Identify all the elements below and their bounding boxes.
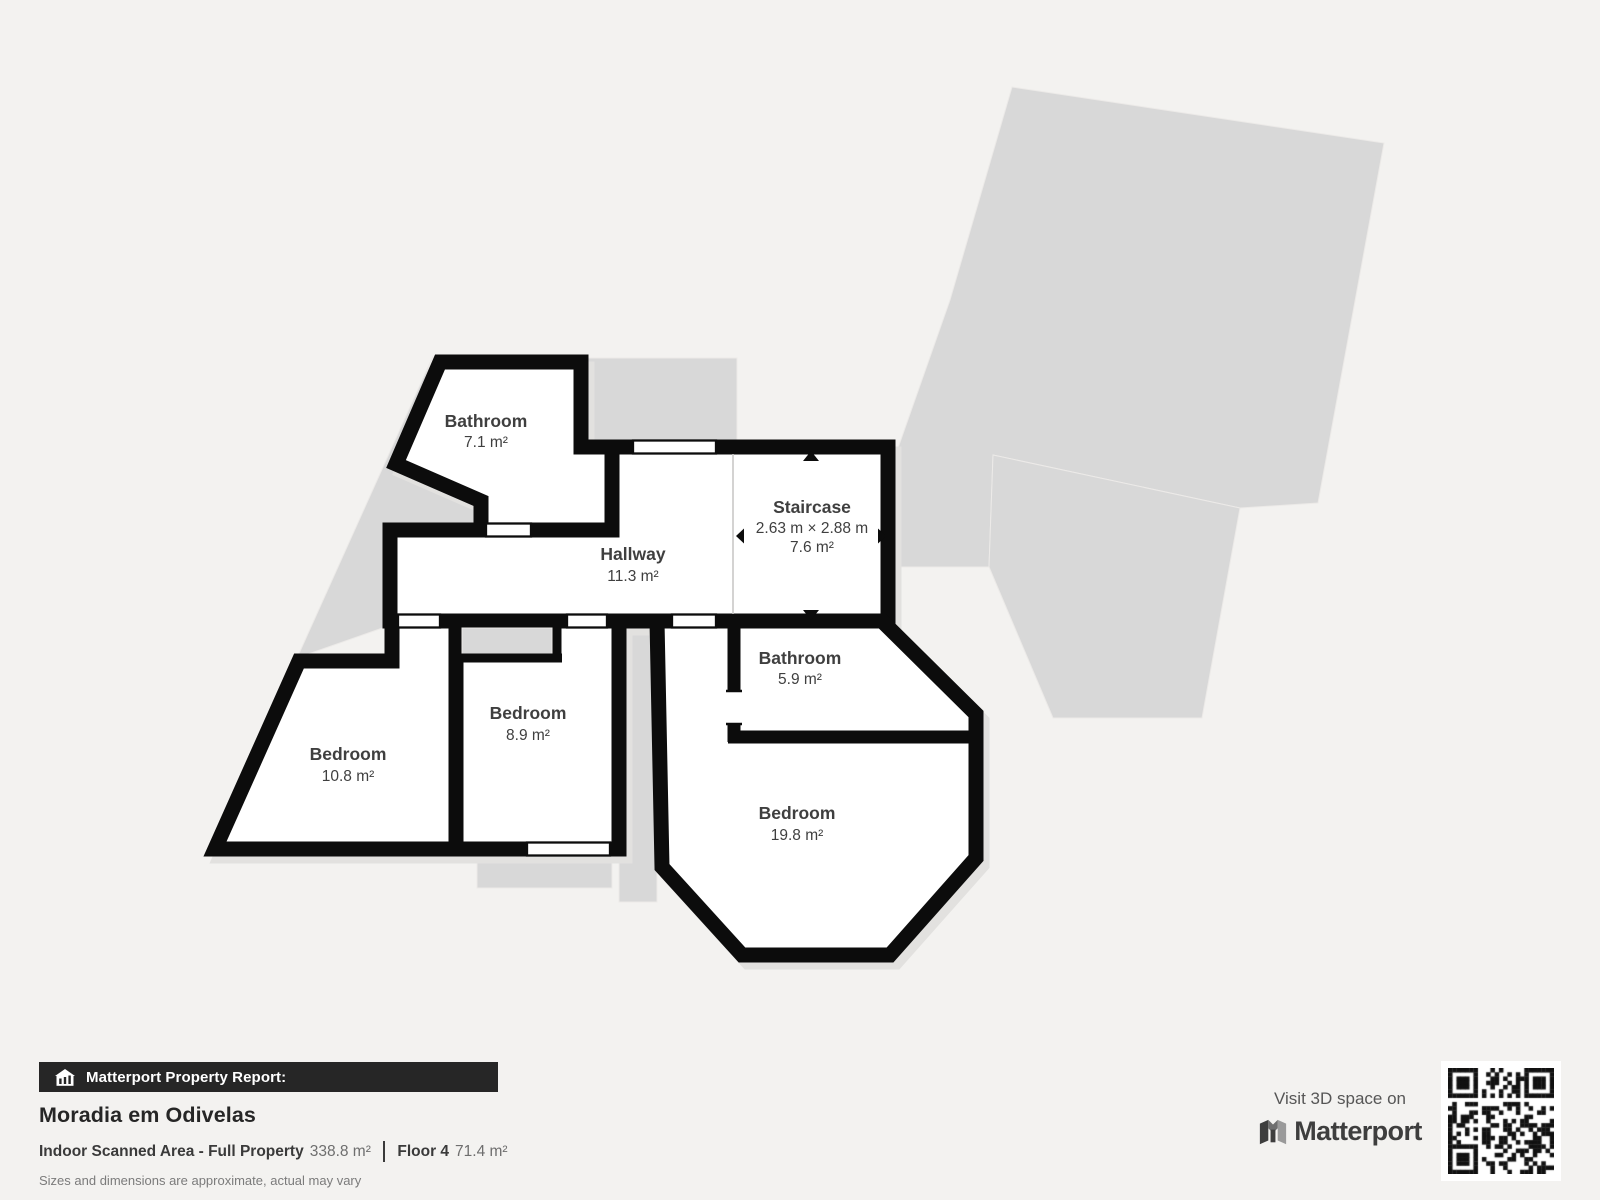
label-staircase-area: 7.6 m² <box>790 539 834 556</box>
disclaimer-text: Sizes and dimensions are approximate, ac… <box>39 1173 508 1188</box>
label-hallway-name: Hallway <box>600 544 665 564</box>
label-bathroom-mid-name: Bathroom <box>759 648 842 668</box>
brand-row: Matterport <box>1245 1116 1435 1147</box>
silhouette-above-hallway <box>587 358 737 443</box>
report-footer: Matterport Property Report: Moradia em O… <box>39 1062 508 1188</box>
matterport-wordmark: Matterport <box>1294 1116 1422 1147</box>
label-staircase-dims: 2.63 m × 2.88 m <box>756 520 868 537</box>
floor-label: Floor 4 <box>397 1143 449 1161</box>
label-staircase-name: Staircase <box>773 497 851 517</box>
opening-bedroom-mid <box>567 615 607 628</box>
visit-3d-text: Visit 3D space on <box>1245 1089 1435 1109</box>
window-bedroom-mid <box>527 843 610 856</box>
qr-code <box>1441 1061 1561 1181</box>
property-title: Moradia em Odivelas <box>39 1103 508 1128</box>
report-bar: Matterport Property Report: <box>39 1062 498 1092</box>
promo-block: Visit 3D space on Matterport <box>1245 1089 1435 1147</box>
label-bedroom-mid-name: Bedroom <box>490 703 567 723</box>
property-report-page: Bathroom 7.1 m² Hallway 11.3 m² Staircas… <box>0 0 1600 1200</box>
matterport-logo-icon <box>1258 1117 1288 1147</box>
closet <box>462 628 552 654</box>
scanned-area-label: Indoor Scanned Area - Full Property <box>39 1143 304 1161</box>
opening-bedroom-left <box>398 615 440 628</box>
floor-plan-svg: Bathroom 7.1 m² Hallway 11.3 m² Staircas… <box>0 0 1600 1200</box>
house-icon <box>55 1069 75 1086</box>
qr-code-canvas <box>1448 1068 1554 1174</box>
window-bathroom-top <box>486 524 531 537</box>
label-bedroom-large-area: 19.8 m² <box>771 827 824 844</box>
label-bedroom-left-name: Bedroom <box>310 744 387 764</box>
report-bar-label: Matterport Property Report: <box>86 1069 286 1086</box>
opening-bedroom-large <box>672 615 716 628</box>
area-stats: Indoor Scanned Area - Full Property 338.… <box>39 1141 508 1162</box>
label-bathroom-top-name: Bathroom <box>445 411 528 431</box>
label-bedroom-large-name: Bedroom <box>759 803 836 823</box>
stats-divider <box>383 1141 386 1162</box>
label-bedroom-left-area: 10.8 m² <box>322 768 375 785</box>
label-bathroom-mid-area: 5.9 m² <box>778 671 822 688</box>
label-bathroom-top-area: 7.1 m² <box>464 434 508 451</box>
window-hallway-top <box>633 441 716 454</box>
label-bedroom-mid-area: 8.9 m² <box>506 727 550 744</box>
floor-value: 71.4 m² <box>455 1143 508 1161</box>
scanned-area-value: 338.8 m² <box>310 1143 371 1161</box>
room-bedroom-left <box>215 621 456 849</box>
label-hallway-area: 11.3 m² <box>607 568 658 585</box>
